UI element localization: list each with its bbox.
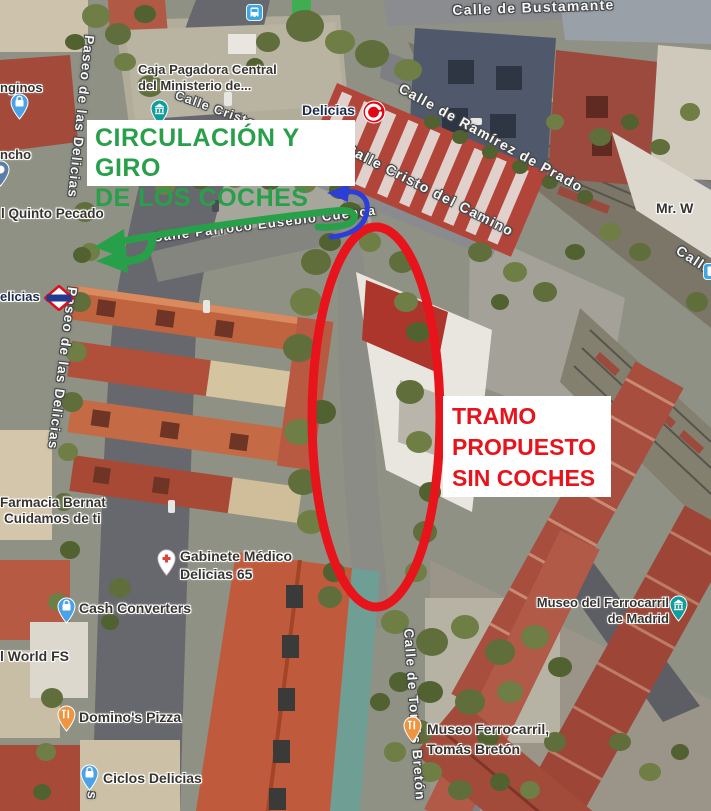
poi-gabinete-line2: Delicias 65 [180,565,292,583]
bus-stop-icon[interactable] [246,4,263,26]
poi-label-gabinete-medico[interactable]: Gabinete Médico Delicias 65 [180,547,292,583]
poi-label-delicias-station[interactable]: Delicias [302,102,355,118]
poi-museo-tomas-line2: Tomás Bretón [427,739,549,759]
poi-farmacia-line2: Cuidamos de ti [0,511,106,527]
satellite-map[interactable]: Calle de Bustamante Calle de Ramírez de … [0,0,711,811]
circulation-line1: CIRCULACIÓN Y GIRO [95,123,355,183]
museum-pin-icon[interactable] [669,595,688,627]
circulation-line2: DE LOS COCHES [95,183,355,213]
poi-label-caja-pagadora[interactable]: Caja Pagadora Central del Ministerio de.… [138,62,277,94]
poi-label-delicias-metro[interactable]: elicias [0,289,40,305]
poi-farmacia-line1: Farmacia Bernat [0,495,106,511]
tramo-line1: TRAMO [452,401,611,432]
poi-label-world-fs-partial[interactable]: l World FS [0,648,69,664]
poi-label-ciclos-delicias[interactable]: Ciclos Delicias [103,770,202,786]
tramo-line3: SIN COCHES [452,463,611,494]
poi-museo-tomas-line1: Museo Ferrocarril, [427,719,549,739]
bus-stop-icon-partial[interactable] [703,263,711,285]
tramo-annotation-box: TRAMO PROPUESTO SIN COCHES [443,396,611,497]
restaurant-pin-icon[interactable] [403,716,422,748]
restaurant-pin-icon[interactable] [57,705,76,737]
circulation-annotation-box: CIRCULACIÓN Y GIRO DE LOS COCHES [87,120,355,186]
metro-logo-icon[interactable] [44,285,74,316]
poi-caja-line1: Caja Pagadora Central [138,62,277,78]
poi-label-museo-ferrocarril-tomas[interactable]: Museo Ferrocarril, Tomás Bretón [427,719,549,759]
poi-caja-line2: del Ministerio de... [138,78,277,94]
poi-label-dominos-pizza[interactable]: Domino's Pizza [79,709,181,725]
poi-gabinete-line1: Gabinete Médico [180,547,292,565]
health-pin-icon[interactable] [157,549,176,581]
partial-pin-icon[interactable] [0,160,10,192]
poi-label-mr-w-partial[interactable]: Mr. W [656,200,693,216]
shopping-pin-icon[interactable] [10,93,29,125]
poi-museo-madrid-line1: Museo del Ferrocarril [523,595,669,611]
poi-museo-madrid-line2: de Madrid [523,611,669,627]
poi-label-cash-converters[interactable]: Cash Converters [79,600,191,616]
poi-label-el-quinto-pecado[interactable]: l Quinto Pecado [1,206,104,222]
shopping-pin-icon[interactable] [57,597,76,629]
poi-label-museo-ferrocarril-madrid[interactable]: Museo del Ferrocarril de Madrid [523,595,669,627]
poi-label-farmacia-bernat[interactable]: Farmacia Bernat Cuidamos de ti [0,495,106,527]
cercanias-logo-icon[interactable] [362,100,386,129]
shopping-pin-icon[interactable] [80,764,99,796]
tramo-line2: PROPUESTO [452,432,611,463]
